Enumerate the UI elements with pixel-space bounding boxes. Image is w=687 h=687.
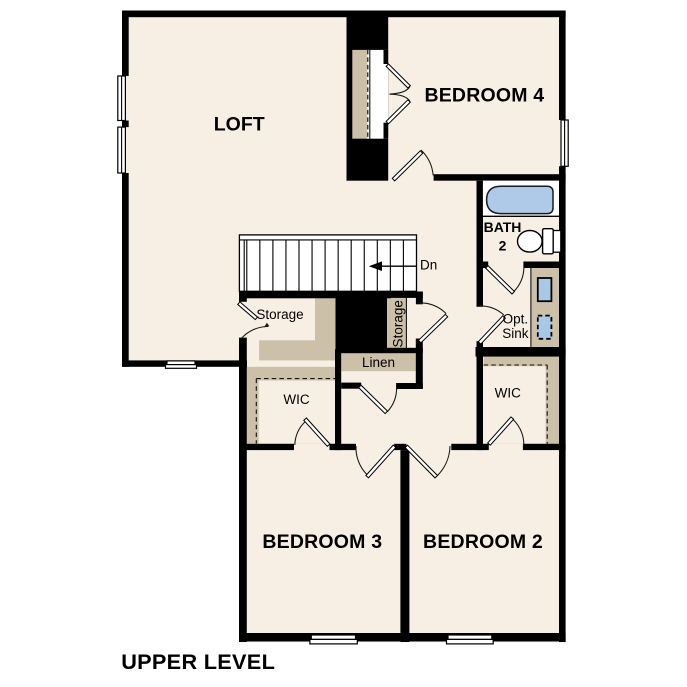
- svg-text:Storage: Storage: [390, 300, 405, 347]
- svg-text:WIC: WIC: [495, 385, 521, 400]
- svg-text:Storage: Storage: [256, 307, 303, 322]
- svg-text:WIC: WIC: [283, 392, 309, 407]
- svg-text:2: 2: [499, 238, 507, 254]
- svg-text:LOFT: LOFT: [214, 114, 265, 136]
- svg-text:BATH: BATH: [484, 219, 522, 235]
- svg-text:Sink: Sink: [502, 326, 529, 341]
- svg-text:BEDROOM 4: BEDROOM 4: [424, 84, 544, 106]
- svg-text:BEDROOM 2: BEDROOM 2: [423, 531, 543, 553]
- svg-text:Opt.: Opt.: [503, 312, 529, 327]
- svg-text:Linen: Linen: [362, 355, 395, 370]
- svg-text:BEDROOM 3: BEDROOM 3: [262, 531, 382, 553]
- svg-text:Dn: Dn: [420, 258, 437, 273]
- svg-text:UPPER LEVEL: UPPER LEVEL: [121, 649, 275, 674]
